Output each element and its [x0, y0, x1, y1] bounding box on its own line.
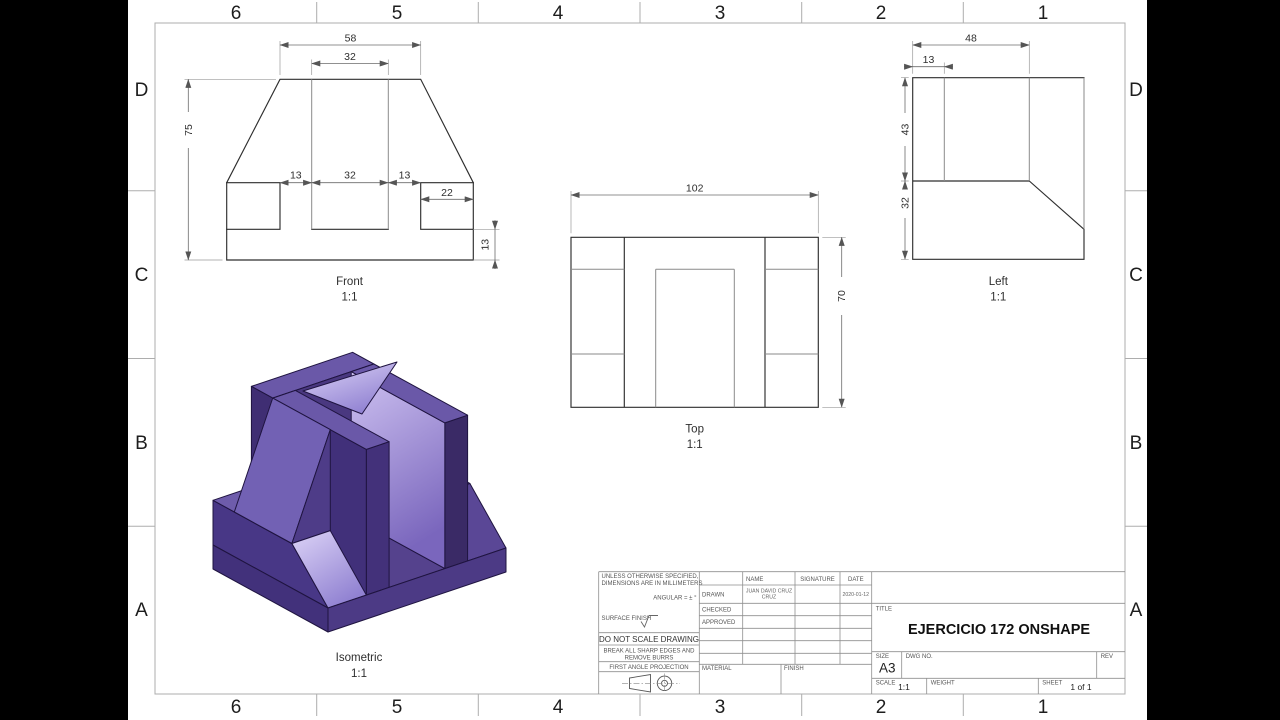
- grid-col-label: 6: [231, 3, 242, 24]
- grid-row-label: B: [1130, 433, 1143, 454]
- tb-size-label: SIZE: [876, 654, 889, 660]
- top-view-label: Top: [685, 424, 704, 436]
- tb-date-header: DATE: [848, 577, 864, 583]
- grid-row-label: B: [135, 433, 148, 454]
- iso-view-scale: 1:1: [351, 668, 367, 680]
- tb-spec-line2: DIMENSIONS ARE IN MILLIMETERS: [602, 581, 703, 587]
- dim-front-58: 58: [345, 33, 357, 45]
- tb-signature-header: SIGNATURE: [800, 577, 835, 583]
- grid-col-label: 5: [392, 3, 403, 24]
- dim-left-48: 48: [965, 33, 977, 45]
- tb-angular: ANGULAR = ± °: [653, 596, 697, 602]
- grid-col-label: 2: [876, 3, 887, 24]
- left-view-scale: 1:1: [990, 292, 1006, 304]
- front-view-label: Front: [336, 276, 364, 288]
- tb-do-not-scale: DO NOT SCALE DRAWING: [599, 635, 699, 644]
- tb-spec-line1: UNLESS OTHERWISE SPECIFIED,: [602, 574, 699, 580]
- grid-col-label: 2: [876, 697, 887, 718]
- tb-finish-label: FINISH: [784, 666, 804, 672]
- dim-front-75: 75: [183, 124, 195, 136]
- dim-top-70: 70: [836, 290, 848, 302]
- front-view-scale: 1:1: [342, 292, 358, 304]
- grid-row-label: D: [1129, 80, 1143, 101]
- dim-left-13: 13: [923, 54, 935, 66]
- drawing-canvas: 6 5 4 3 2 1 6 5 4 3 2 1 D C B A D C B A: [0, 0, 1280, 720]
- top-view-scale: 1:1: [687, 439, 703, 451]
- tb-scale-value: 1:1: [898, 682, 910, 692]
- tb-drawn-date: 2020-01-12: [843, 592, 870, 598]
- grid-col-label: 4: [553, 697, 564, 718]
- tb-sheet-label: SHEET: [1042, 681, 1062, 687]
- grid-col-label: 3: [715, 3, 726, 24]
- tb-sheet-value: 1 of 1: [1070, 682, 1092, 692]
- left-view-label: Left: [989, 276, 1009, 288]
- tb-title-label: TITLE: [876, 607, 892, 613]
- grid-col-label: 3: [715, 697, 726, 718]
- dim-top-102: 102: [686, 183, 704, 195]
- drawing-sheet: [128, 0, 1147, 720]
- tb-drawn-label: DRAWN: [702, 593, 724, 599]
- grid-row-label: A: [135, 600, 148, 621]
- dim-front-13-base: 13: [480, 239, 492, 251]
- tb-material-label: MATERIAL: [702, 666, 732, 672]
- grid-row-label: C: [1129, 265, 1143, 286]
- tb-name-header: NAME: [746, 577, 763, 583]
- tb-dwg-label: DWG NO.: [906, 654, 933, 660]
- grid-row-label: D: [135, 80, 149, 101]
- iso-face-leftcol-front: [366, 442, 389, 595]
- tb-projection-label: FIRST ANGLE PROJECTION: [609, 665, 688, 671]
- iso-face-rightcol-front: [445, 415, 468, 568]
- tb-break-edges-1: BREAK ALL SHARP EDGES AND: [603, 649, 695, 655]
- dim-front-13-left: 13: [290, 170, 302, 182]
- grid-col-label: 4: [553, 3, 564, 24]
- tb-checked-label: CHECKED: [702, 608, 732, 614]
- dim-front-32-mid: 32: [344, 170, 356, 182]
- grid-col-label: 1: [1038, 697, 1049, 718]
- tb-surface-finish: SURFACE FINISH: [602, 616, 652, 622]
- video-frame: 6 5 4 3 2 1 6 5 4 3 2 1 D C B A D C B A: [0, 0, 1280, 720]
- grid-col-label: 6: [231, 697, 242, 718]
- tb-title: EJERCICIO 172 ONSHAPE: [908, 622, 1090, 638]
- dim-front-13-right: 13: [399, 170, 411, 182]
- tb-size-value: A3: [879, 661, 896, 676]
- grid-col-label: 5: [392, 697, 403, 718]
- dim-left-43: 43: [899, 124, 911, 136]
- tb-drawn-name-2: CRUZ: [762, 595, 776, 601]
- tb-rev-label: REV: [1101, 654, 1113, 660]
- iso-view-label: Isometric: [336, 652, 383, 664]
- dim-left-32: 32: [899, 197, 911, 209]
- tb-break-edges-2: REMOVE BURRS: [625, 656, 674, 662]
- tb-weight-label: WEIGHT: [931, 681, 955, 687]
- dim-front-22: 22: [441, 187, 453, 199]
- grid-col-label: 1: [1038, 3, 1049, 24]
- grid-row-label: A: [1130, 600, 1143, 621]
- dim-front-32-top: 32: [344, 51, 356, 63]
- tb-scale-label: SCALE: [876, 681, 896, 687]
- tb-approved-label: APPROVED: [702, 620, 736, 626]
- grid-row-label: C: [135, 265, 149, 286]
